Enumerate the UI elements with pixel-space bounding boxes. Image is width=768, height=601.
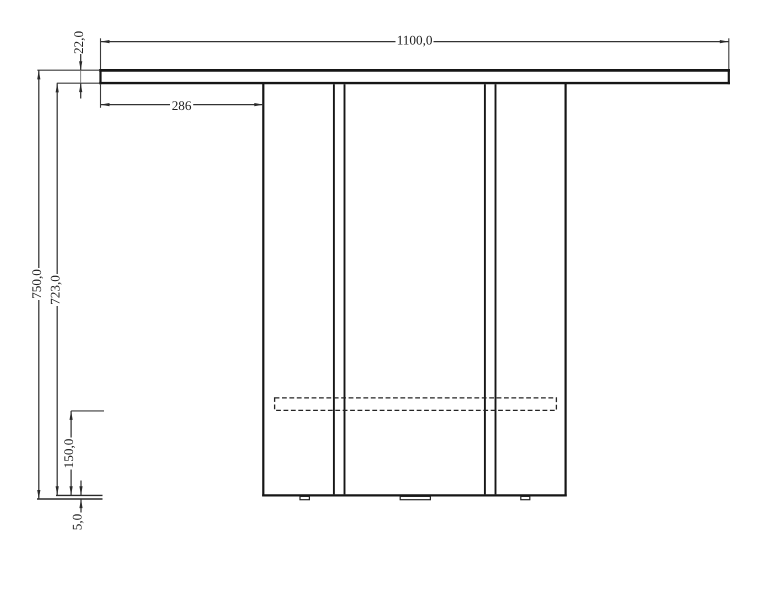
svg-text:723,0: 723,0 xyxy=(47,275,62,305)
svg-text:1100,0: 1100,0 xyxy=(397,33,433,48)
svg-text:5,0: 5,0 xyxy=(70,513,85,530)
svg-text:22,0: 22,0 xyxy=(71,31,86,54)
svg-text:750,0: 750,0 xyxy=(29,269,44,299)
svg-text:286: 286 xyxy=(172,98,192,113)
svg-text:150,0: 150,0 xyxy=(61,438,76,468)
